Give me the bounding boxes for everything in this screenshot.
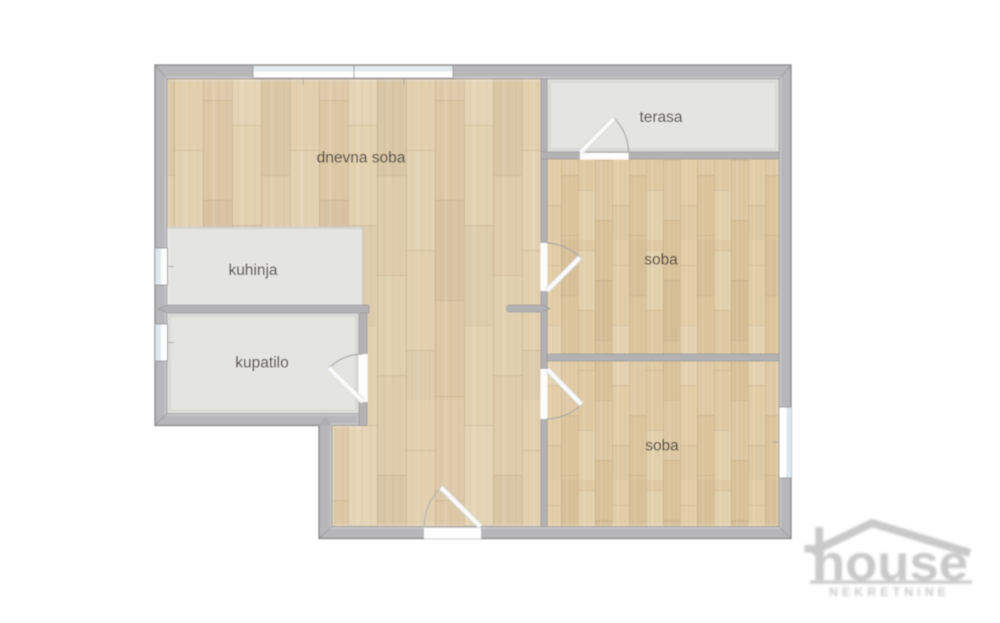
svg-text:soba: soba <box>645 438 679 455</box>
svg-text:kupatilo: kupatilo <box>235 355 288 372</box>
svg-text:kuhinja: kuhinja <box>228 262 277 279</box>
svg-text:dnevna soba: dnevna soba <box>317 150 406 167</box>
svg-text:NEKRETNINE: NEKRETNINE <box>829 585 950 599</box>
svg-text:soba: soba <box>644 252 678 269</box>
svg-text:terasa: terasa <box>639 109 682 126</box>
